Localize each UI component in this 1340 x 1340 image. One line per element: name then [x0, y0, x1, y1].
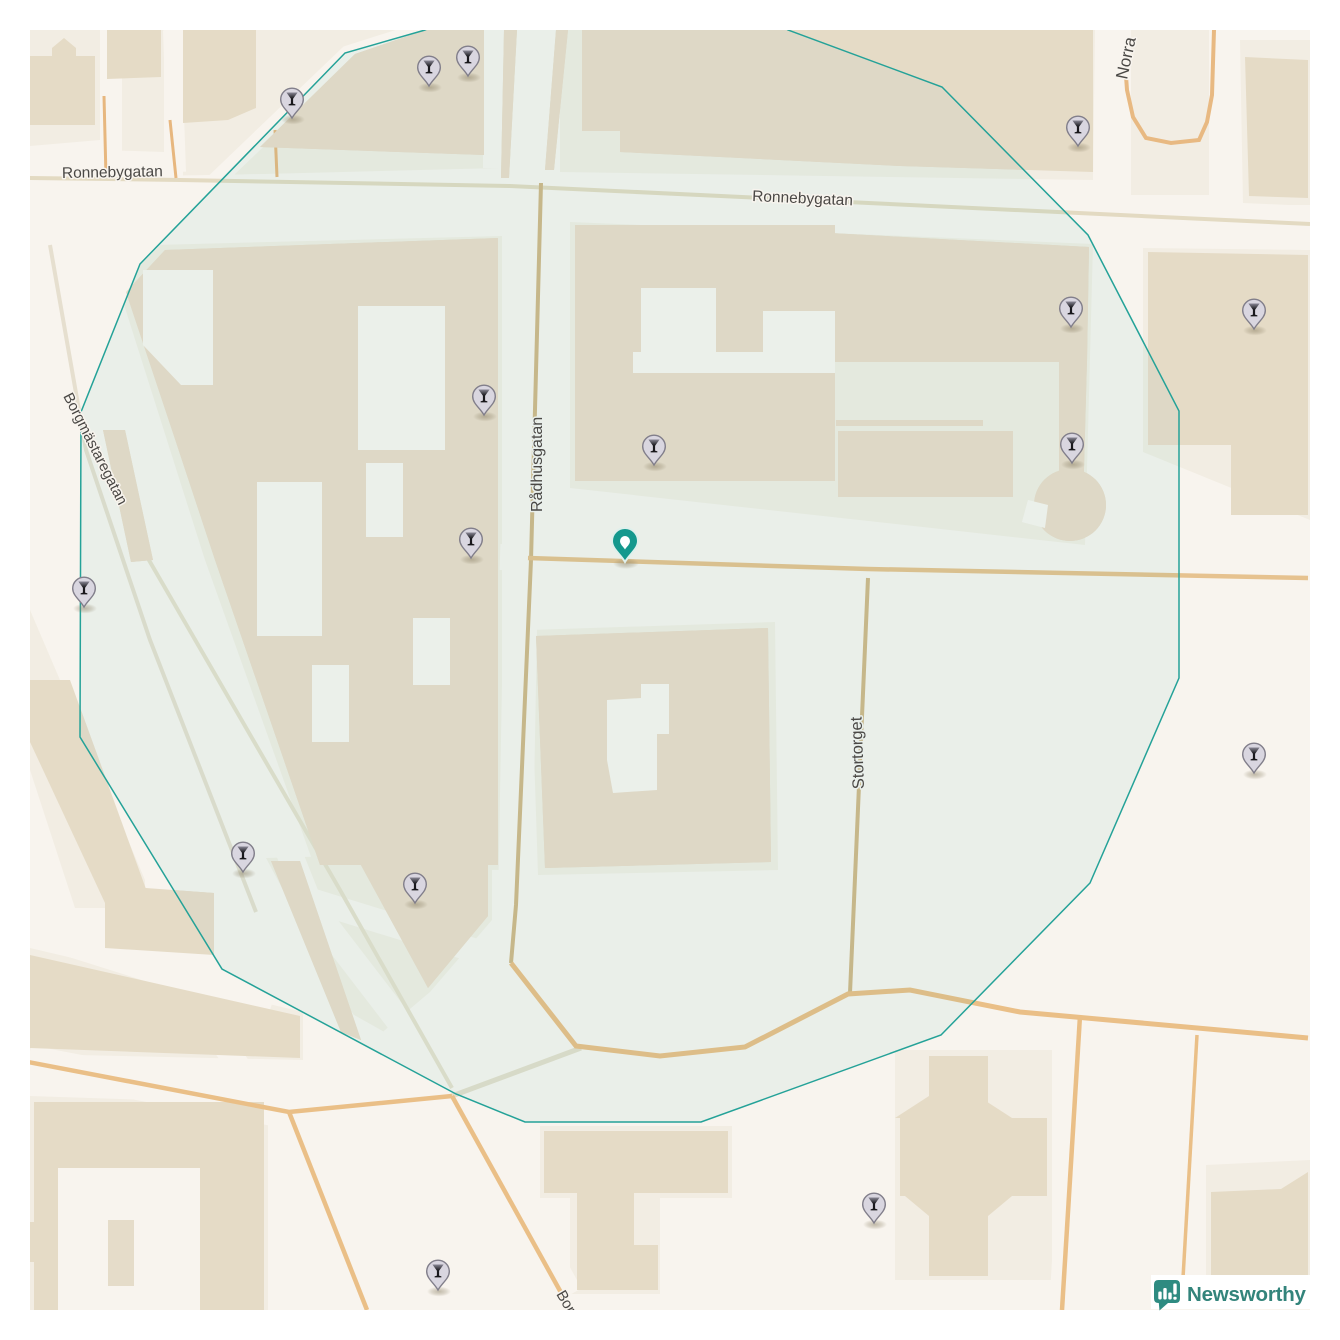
svg-text:Rådhusgatan: Rådhusgatan — [528, 417, 546, 512]
svg-text:Newsworthy: Newsworthy — [1187, 1283, 1307, 1306]
svg-text:Ronnebygatan: Ronnebygatan — [62, 163, 163, 182]
svg-text:Stortorget: Stortorget — [847, 716, 868, 789]
